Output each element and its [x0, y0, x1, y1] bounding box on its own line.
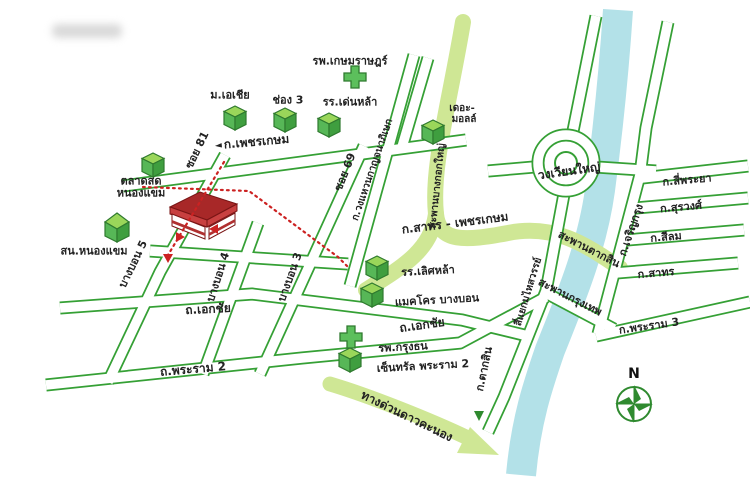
label-market-2: หนองแขม — [117, 188, 166, 199]
label-the-mall-2: มอลล์ — [452, 115, 477, 125]
univ-asia-icon — [224, 106, 246, 130]
market-nongkhaem-icon — [142, 153, 164, 177]
label-market-1: ตลาดสด — [120, 176, 161, 187]
compass-icon — [615, 385, 653, 423]
label-the-mall-1: เดอะ- — [449, 104, 474, 114]
label-road-silom: ก.สีลม — [650, 230, 682, 244]
hospital-kasemrad-icon — [344, 66, 366, 88]
makro-icon — [361, 283, 383, 307]
label-road-sathorn: ก.สาทร — [637, 266, 675, 280]
label-hospital-krungthon: รพ.กรุงธน — [378, 340, 428, 354]
label-school-lertlah: รร.เลิศหล้า — [401, 264, 455, 278]
location-map: รพ.เกษมราษฎร์ ม.เอเชีย ช่อง 3 รร.เด่นหล้… — [0, 0, 750, 500]
label-hospital-kasemrad: รพ.เกษมราษฎร์ — [313, 56, 388, 67]
phetkasem-direction-arrow-icon: ◄ — [215, 141, 223, 152]
label-univ-asia: ม.เอเชีย — [210, 90, 249, 101]
label-channel3: ช่อง 3 — [273, 95, 304, 106]
central-rama2-icon — [339, 348, 361, 372]
label-road-surawong: ก.สุรวงศ์ — [660, 200, 703, 215]
police-nongkhaem-icon — [105, 213, 129, 242]
label-road-ekkachai-west: ถ.เอกชัย — [185, 302, 231, 316]
the-mall-icon — [422, 120, 444, 144]
taksin-direction-arrow-icon — [474, 411, 484, 421]
compass-north-label: N — [628, 367, 640, 381]
label-school-denla: รร.เด่นหล้า — [323, 97, 378, 108]
hospital-krungthon-icon — [340, 326, 362, 348]
label-police-nongkhaem: สน.หนองแขม — [60, 246, 127, 257]
channel3-icon — [274, 108, 296, 132]
school-denla-icon — [318, 113, 340, 137]
school-lertlah-icon — [366, 256, 388, 280]
